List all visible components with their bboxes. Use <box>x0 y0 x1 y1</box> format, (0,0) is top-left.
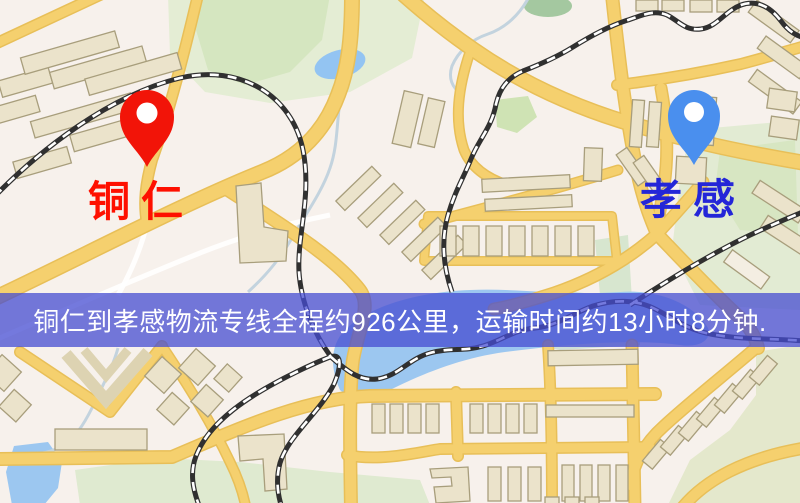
origin-pin-icon[interactable] <box>115 87 179 171</box>
origin-pin-shape <box>120 90 174 167</box>
origin-pin-hole <box>137 103 158 124</box>
map-canvas[interactable] <box>0 0 800 503</box>
destination-label: 孝感 <box>640 179 746 221</box>
route-info-banner: 铜仁到孝感物流专线全程约926公里，运输时间约13小时8分钟. <box>0 293 800 347</box>
destination-pin-hole <box>684 102 704 122</box>
map-root: 铜仁 孝感 铜仁到孝感物流专线全程约926公里，运输时间约13小时8分钟. <box>0 0 800 503</box>
origin-label: 铜仁 <box>88 181 194 223</box>
destination-pin-shape <box>668 90 720 165</box>
destination-pin-icon[interactable] <box>664 87 724 167</box>
route-info-text: 铜仁到孝感物流专线全程约926公里，运输时间约13小时8分钟. <box>33 302 766 339</box>
